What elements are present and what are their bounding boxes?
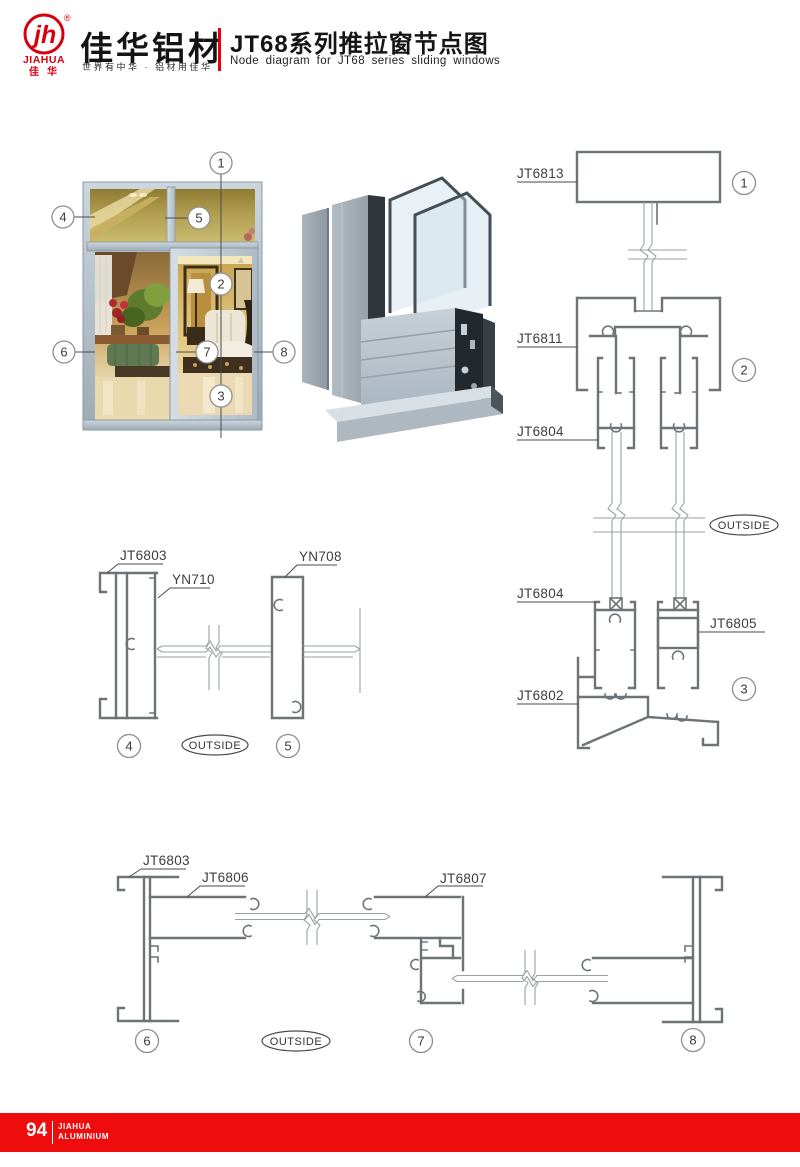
svg-text:JT6813: JT6813	[517, 166, 564, 181]
mid-glass-right	[303, 608, 360, 693]
svg-text:2: 2	[217, 277, 224, 292]
page-number: 94	[26, 1120, 47, 1142]
svg-text:JT6804: JT6804	[517, 424, 564, 439]
svg-text:4: 4	[125, 739, 132, 754]
svg-text:JT6805: JT6805	[710, 616, 757, 631]
footer-brand: JIAHUA ALUMINIUM	[58, 1122, 109, 1142]
brand-logo: jh ® JIAHUA 佳华	[14, 10, 78, 78]
logo-brand-en: JIAHUA	[23, 54, 65, 66]
window-callout-7: 7	[196, 341, 218, 363]
section-callout-4: 4	[118, 735, 141, 758]
logo-registered-mark: ®	[64, 13, 71, 23]
label-yn710: YN710	[158, 572, 215, 598]
label-jt6804-bottom: JT6804	[517, 586, 595, 602]
svg-text:OUTSIDE: OUTSIDE	[718, 520, 770, 532]
svg-text:JT6807: JT6807	[440, 871, 487, 886]
svg-text:JT6802: JT6802	[517, 688, 564, 703]
label-jt6811: JT6811	[517, 331, 577, 347]
svg-text:OUTSIDE: OUTSIDE	[189, 740, 241, 752]
outside-label-right: OUTSIDE	[710, 515, 778, 535]
footer-brand-line2: ALUMINIUM	[58, 1132, 109, 1141]
svg-text:8: 8	[689, 1033, 696, 1048]
bottom-glass-right	[452, 950, 608, 1005]
label-jt6807: JT6807	[425, 871, 487, 897]
window-callout-4: 4	[52, 206, 74, 228]
label-jt6802: JT6802	[517, 688, 578, 704]
render-right-assembly	[455, 308, 483, 400]
svg-text:6: 6	[60, 345, 67, 360]
render-left-slab	[302, 208, 328, 390]
svg-text:JT6803: JT6803	[143, 853, 190, 868]
footer-brand-line1: JIAHUA	[58, 1122, 91, 1131]
svg-text:JT6811: JT6811	[517, 331, 563, 346]
page-subtitle: Node diagram for JT68 series sliding win…	[230, 55, 500, 67]
window-callout-6: 6	[53, 341, 75, 363]
svg-text:YN708: YN708	[299, 549, 342, 564]
horizontal-section-detail-bottom: JT6803 JT6806 JT6807 6 OUTSIDE 7 8	[110, 845, 740, 1060]
profile-3d-render	[295, 168, 510, 446]
page-footer: 94 JIAHUA ALUMINIUM	[0, 1113, 800, 1152]
section-callout-8: 8	[682, 1029, 705, 1052]
label-jt6803-mid: JT6803	[107, 548, 167, 573]
window-callout-3: 3	[210, 385, 232, 407]
section-callout-2: 2	[733, 359, 756, 382]
svg-text:1: 1	[217, 156, 224, 171]
left-sash-glass	[95, 252, 172, 420]
logo-graphic: jh ® JIAHUA 佳华	[14, 10, 78, 78]
header-divider	[218, 28, 221, 71]
section-callout-5: 5	[277, 735, 300, 758]
profile-yn708	[272, 577, 303, 718]
label-jt6813: JT6813	[517, 166, 577, 182]
label-jt6804-top: JT6804	[517, 424, 598, 440]
svg-text:3: 3	[740, 682, 747, 697]
svg-text:7: 7	[417, 1034, 424, 1049]
label-jt6805: JT6805	[698, 616, 765, 632]
svg-text:YN710: YN710	[172, 572, 215, 587]
catalog-page: jh ® JIAHUA 佳华 佳华铝材 世界有中华 · 铝材用佳华 JT68系列…	[0, 0, 800, 1167]
label-jt6803-bottom: JT6803	[129, 853, 190, 877]
render-glass-pane-front	[415, 193, 490, 328]
footer-divider	[52, 1121, 53, 1144]
svg-text:JT6806: JT6806	[202, 870, 249, 885]
window-callout-5: 5	[188, 207, 210, 229]
transom-mullion	[167, 187, 175, 242]
profile-right-jamb	[663, 877, 722, 1022]
svg-text:5: 5	[284, 739, 291, 754]
svg-text:JT6803: JT6803	[120, 548, 167, 563]
profile-right-sash-box	[582, 958, 693, 1003]
svg-text:6: 6	[143, 1034, 150, 1049]
page-header: jh ® JIAHUA 佳华 佳华铝材 世界有中华 · 铝材用佳华 JT68系列…	[0, 0, 800, 95]
section-callout-3: 3	[733, 678, 756, 701]
svg-text:OUTSIDE: OUTSIDE	[270, 1036, 322, 1048]
section-callout-1: 1	[733, 172, 756, 195]
svg-text:5: 5	[195, 211, 202, 226]
label-yn708: YN708	[285, 549, 342, 577]
page-title: JT68系列推拉窗节点图	[230, 24, 489, 59]
svg-text:3: 3	[217, 389, 224, 404]
profile-jt6805-assembly	[658, 598, 698, 688]
window-callout-8: 8	[273, 341, 295, 363]
profile-jt6804-bottom	[595, 598, 635, 688]
logo-monogram: jh	[31, 21, 56, 49]
logo-brand-cn: 佳华	[29, 65, 65, 78]
svg-text:1: 1	[740, 176, 747, 191]
profile-jt6805	[658, 618, 698, 648]
section-callout-7: 7	[410, 1030, 433, 1053]
brand-tagline: 世界有中华 · 铝材用佳华	[82, 60, 213, 73]
profile-jt6803-bottom	[118, 877, 178, 1021]
svg-text:2: 2	[740, 363, 747, 378]
mid-glass-left	[157, 625, 272, 690]
window-photo-figure: 1 4 5 2 6 7 8 3	[45, 145, 300, 445]
window-callout-2: 2	[210, 273, 232, 295]
profile-jt6803-mid	[100, 573, 157, 718]
outside-label-mid: OUTSIDE	[182, 735, 248, 755]
svg-text:7: 7	[203, 345, 210, 360]
svg-text:JT6804: JT6804	[517, 586, 564, 601]
vertical-section-detail: JT6813 JT6811 JT6804 JT6804 JT6805 JT680…	[515, 140, 790, 755]
window-bottom-track	[83, 420, 262, 430]
profile-jt6806	[150, 897, 259, 938]
profile-jt6813	[577, 152, 720, 202]
middle-glass-panes	[593, 432, 705, 598]
label-jt6806: JT6806	[187, 870, 249, 897]
svg-text:4: 4	[59, 210, 66, 225]
svg-text:8: 8	[280, 345, 287, 360]
window-callout-1: 1	[210, 152, 232, 174]
outside-label-bottom: OUTSIDE	[262, 1031, 330, 1051]
horizontal-section-detail-top: JT6803 YN710 YN708 4 OUTSIDE 5	[85, 540, 395, 770]
profile-jt6807-assembly	[363, 897, 463, 1003]
section-callout-6: 6	[136, 1030, 159, 1053]
